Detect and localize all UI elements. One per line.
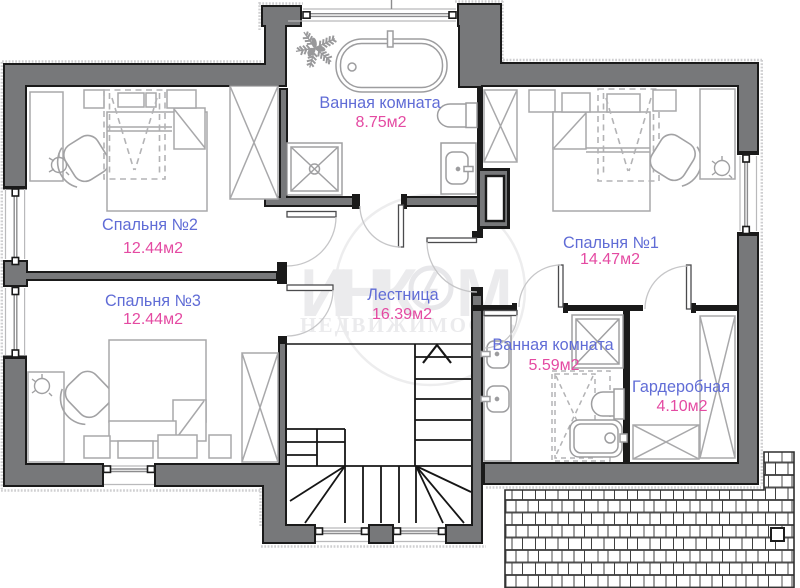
svg-text:8.75м2: 8.75м2 bbox=[355, 114, 406, 131]
svg-text:Ванная комната: Ванная комната bbox=[319, 94, 440, 112]
svg-text:Спальня №2: Спальня №2 bbox=[102, 216, 198, 234]
svg-text:Спальня №3: Спальня №3 bbox=[105, 292, 201, 310]
svg-text:Спальня №1: Спальня №1 bbox=[563, 234, 659, 252]
svg-text:12.44м2: 12.44м2 bbox=[123, 311, 183, 328]
svg-text:12.44м2: 12.44м2 bbox=[123, 240, 183, 257]
svg-text:Ванная комната: Ванная комната bbox=[492, 336, 613, 354]
svg-text:Гардеробная: Гардеробная bbox=[632, 378, 730, 396]
svg-text:16.39м2: 16.39м2 bbox=[372, 306, 432, 323]
svg-text:4.10м2: 4.10м2 bbox=[656, 398, 707, 415]
svg-text:Лестница: Лестница bbox=[367, 286, 438, 304]
svg-text:5.59м2: 5.59м2 bbox=[528, 357, 579, 374]
svg-text:14.47м2: 14.47м2 bbox=[580, 251, 640, 268]
